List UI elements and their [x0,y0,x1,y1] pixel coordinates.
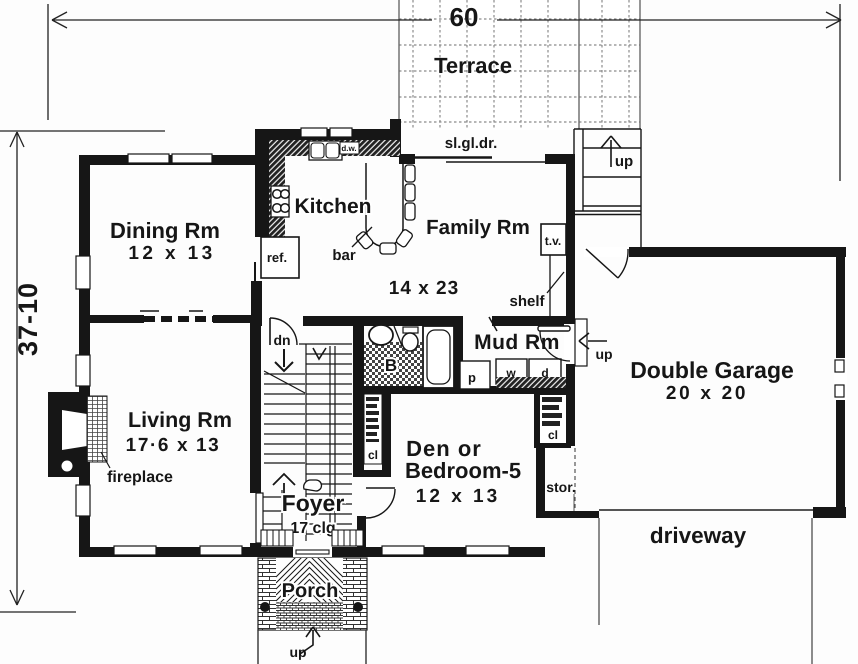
svg-text:Family Rm: Family Rm [426,216,530,239]
svg-text:up: up [615,153,633,170]
svg-text:Dining Rm: Dining Rm [110,218,220,243]
svg-text:stor.: stor. [546,479,576,495]
svg-text:14 x 23: 14 x 23 [389,278,459,299]
svg-text:20 x 20: 20 x 20 [666,383,748,404]
svg-text:Porch: Porch [282,580,339,602]
svg-text:17 clg: 17 clg [290,520,335,537]
svg-text:37-10: 37-10 [13,282,43,356]
svg-text:cl: cl [368,448,378,462]
svg-text:driveway: driveway [650,523,747,548]
svg-text:17·6 x 13: 17·6 x 13 [126,435,221,456]
svg-text:12 x 13: 12 x 13 [128,243,215,264]
svg-text:sl.gl.dr.: sl.gl.dr. [445,135,498,152]
svg-text:60: 60 [450,2,479,32]
svg-text:Double Garage: Double Garage [630,357,794,383]
svg-text:Living Rm: Living Rm [128,408,232,432]
svg-text:Bedroom-5: Bedroom-5 [405,458,521,483]
svg-text:t.v.: t.v. [545,234,561,248]
svg-text:p: p [468,370,476,385]
svg-text:up: up [595,346,612,362]
svg-text:up: up [289,644,306,660]
svg-text:cl: cl [548,428,558,442]
svg-text:dn: dn [273,332,290,348]
svg-text:d.w.: d.w. [341,144,356,153]
svg-text:bar: bar [332,247,356,264]
svg-text:Terrace: Terrace [434,53,512,78]
svg-text:Kitchen: Kitchen [294,195,371,218]
svg-text:Foyer: Foyer [282,490,345,516]
svg-text:12 x 13: 12 x 13 [416,486,500,507]
svg-text:ref.: ref. [267,250,287,265]
svg-text:fireplace: fireplace [107,469,173,486]
svg-text:B: B [385,356,397,375]
svg-text:shelf: shelf [509,293,545,310]
